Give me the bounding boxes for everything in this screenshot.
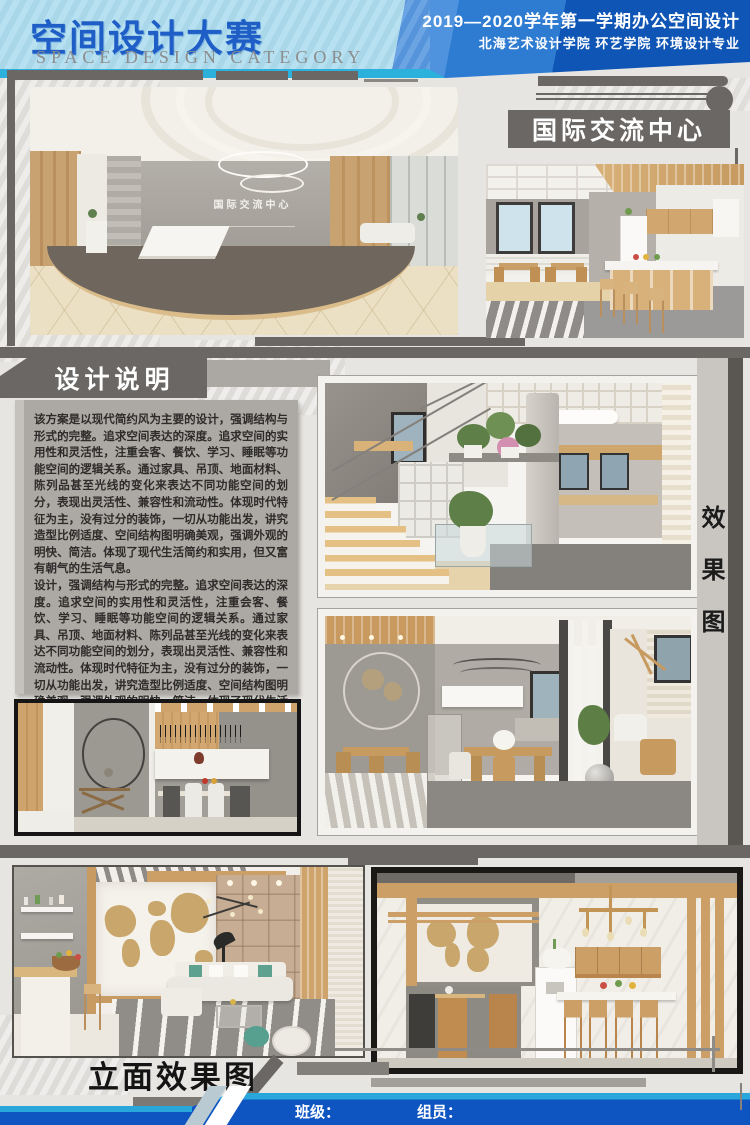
carpet bbox=[427, 781, 691, 828]
frame-bar-top2 bbox=[216, 71, 288, 80]
flower-icon bbox=[194, 752, 204, 764]
chair-wood bbox=[640, 739, 677, 775]
center-name-label: 国际交流中心 bbox=[532, 111, 706, 147]
poster-canvas: 空间设计大赛 SPACE DESIGN CATEGORY 2019—2020学年… bbox=[0, 0, 750, 1125]
dining-table bbox=[343, 747, 409, 755]
poster-title-en: SPACE DESIGN CATEGORY bbox=[36, 47, 365, 68]
deco-bar-right bbox=[297, 1062, 389, 1075]
reception-desk bbox=[139, 226, 229, 256]
notes-deco-bar bbox=[205, 360, 330, 387]
chair-dark bbox=[163, 786, 180, 820]
design-notes-title: 设计说明 bbox=[32, 360, 174, 396]
design-notes-badge: 设计说明 bbox=[0, 358, 207, 398]
step-stripes bbox=[486, 301, 584, 338]
lobby-wall-sign: 国际交流中心 bbox=[184, 196, 321, 211]
wall-shelf bbox=[21, 907, 73, 913]
range-hood bbox=[713, 199, 739, 237]
bar-stool bbox=[623, 282, 638, 324]
lounge-rendering-image bbox=[12, 865, 365, 1058]
design-notes-paragraph-1: 该方案是以现代简约风为主要的设计，强调结构与形式的完整。追求空间表达的深度。追求… bbox=[34, 412, 288, 578]
chair-white bbox=[185, 783, 202, 817]
armchair-white bbox=[614, 714, 647, 742]
bar-counter bbox=[21, 973, 70, 1056]
badge-deco-bar bbox=[538, 76, 688, 86]
under-image-bar bbox=[371, 1078, 646, 1087]
side-dark-strip bbox=[728, 358, 743, 845]
renderings-vertical-label: 效果图 bbox=[698, 505, 728, 695]
chair-white bbox=[449, 752, 471, 780]
deco-thin-line bbox=[330, 1048, 720, 1051]
console-table bbox=[79, 788, 129, 791]
bar-stool bbox=[84, 984, 101, 1029]
striped-floor bbox=[325, 773, 435, 828]
island-counter bbox=[605, 261, 719, 270]
window-icon bbox=[559, 453, 589, 490]
badge-circle-icon bbox=[706, 86, 733, 113]
plant-icon bbox=[88, 209, 97, 218]
center-name-badge: 国际交流中心 bbox=[508, 110, 730, 148]
pendant-panel bbox=[442, 686, 523, 707]
window-icon bbox=[600, 453, 630, 490]
cushion-teal bbox=[258, 965, 272, 976]
plant-icon bbox=[515, 424, 541, 447]
lobby-rendering-image: 国际交流中心 bbox=[30, 87, 458, 335]
elevation-large-image bbox=[371, 867, 743, 1074]
lobby-sofa bbox=[360, 223, 416, 243]
staircase-rendering-image bbox=[318, 376, 698, 597]
upper-cabinets bbox=[646, 209, 713, 233]
frame-bar-top1 bbox=[7, 70, 203, 80]
plant-icon bbox=[486, 412, 515, 439]
dining-rendering-image bbox=[318, 609, 698, 835]
header-school-line: 北海艺术设计学院 环艺学院 环境设计专业 bbox=[479, 33, 740, 52]
ring-decor-icon bbox=[82, 718, 145, 789]
marble-panel bbox=[155, 749, 269, 779]
upper-cabinets bbox=[575, 947, 661, 974]
elevation-small-image bbox=[14, 699, 301, 836]
flowers-icon bbox=[543, 947, 572, 968]
kitchen-rendering-image bbox=[486, 164, 744, 338]
window-icon bbox=[538, 202, 575, 253]
footer-members-label: 组员： bbox=[417, 1101, 462, 1122]
plant-icon bbox=[578, 705, 611, 745]
cushion-teal bbox=[189, 965, 203, 976]
coffee-table bbox=[216, 1005, 262, 1028]
section-divider-bar bbox=[0, 347, 750, 358]
flowers-icon bbox=[493, 730, 515, 749]
pet-bed bbox=[272, 1026, 311, 1056]
pouf-teal bbox=[244, 1026, 268, 1047]
frame-bar-left bbox=[7, 70, 15, 346]
footer-cyan-left bbox=[0, 1106, 192, 1112]
bar-stool bbox=[600, 279, 615, 317]
design-notes-panel: 该方案是以现代简约风为主要的设计，强调结构与形式的完整。追求空间表达的深度。追求… bbox=[15, 400, 298, 694]
header-semester-line: 2019—2020学年第一学期办公空间设计 bbox=[422, 7, 740, 32]
frame-bar-top3 bbox=[292, 71, 358, 80]
frame-bar-bottom bbox=[255, 337, 525, 346]
window-icon bbox=[496, 202, 533, 253]
deco-tick bbox=[712, 1036, 715, 1072]
wall-shelf bbox=[21, 933, 73, 939]
footer-class-label: 班级： bbox=[295, 1101, 340, 1122]
bar-counter bbox=[557, 992, 676, 1000]
frame-line-top bbox=[364, 79, 418, 82]
lower-divider-bar bbox=[0, 845, 750, 858]
window-icon bbox=[654, 635, 693, 683]
poster-header: 空间设计大赛 SPACE DESIGN CATEGORY 2019—2020学年… bbox=[0, 0, 750, 78]
footer-tick-line bbox=[740, 1083, 742, 1110]
fishbone-art-icon bbox=[160, 725, 244, 737]
chair-white bbox=[208, 783, 225, 817]
chaise bbox=[161, 988, 203, 1016]
chair-dark bbox=[409, 994, 434, 1051]
chair-dark bbox=[230, 786, 250, 820]
wood-beam bbox=[377, 883, 737, 899]
chair-wood bbox=[489, 994, 518, 1051]
plant-icon bbox=[449, 491, 493, 530]
bar-stool bbox=[649, 288, 664, 333]
